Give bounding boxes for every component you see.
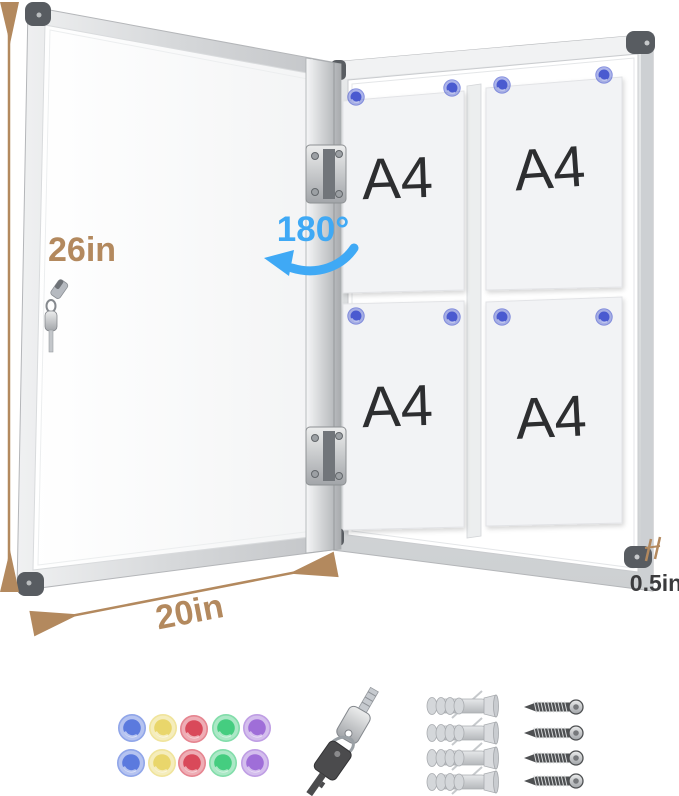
door-inner-panel — [33, 25, 318, 570]
board-divider — [467, 84, 481, 538]
magnet — [149, 714, 177, 742]
arrowhead-up-icon — [0, 2, 19, 44]
width-label: 20in — [153, 587, 227, 637]
mounting-screw — [524, 774, 583, 788]
a4-label: A4 — [361, 373, 434, 440]
mounting-screw — [524, 700, 583, 714]
board-magnet — [595, 308, 612, 325]
accessory-magnets — [117, 714, 271, 777]
board-magnet — [347, 88, 364, 105]
hinge — [306, 427, 346, 485]
board-magnet — [443, 308, 460, 325]
open-angle-label: 180° — [277, 210, 349, 249]
open-door — [17, 2, 332, 596]
included-keys — [299, 683, 385, 796]
mounting-screws — [524, 700, 583, 788]
dark-key — [299, 739, 354, 796]
wall-anchor — [427, 743, 499, 770]
arrowhead-down-icon — [0, 550, 19, 592]
cabinet-corner-cap-top-right — [626, 31, 655, 54]
arrowhead-left-icon — [29, 602, 81, 637]
arrowhead-right-icon — [287, 552, 339, 587]
a4-label: A4 — [361, 145, 434, 212]
board-magnet — [595, 66, 612, 83]
wall-anchor — [427, 718, 499, 745]
magnet — [117, 749, 145, 777]
magnet — [148, 749, 176, 777]
product-image-canvas: A4 A4 A4 A4 — [0, 0, 679, 796]
depth-label: 0.5in — [630, 570, 679, 596]
wall-anchor — [427, 767, 499, 794]
board-magnet — [347, 307, 364, 324]
wall-anchor — [427, 691, 499, 718]
mounting-screw — [524, 726, 583, 740]
wall-anchors — [427, 691, 499, 794]
hinge — [306, 145, 346, 203]
a4-label: A4 — [514, 383, 588, 452]
magnet — [243, 714, 271, 742]
magnet — [212, 714, 240, 742]
a4-label: A4 — [512, 134, 587, 204]
board-cabinet: A4 A4 A4 A4 — [331, 31, 655, 591]
mounting-screw — [524, 751, 583, 765]
magnet — [180, 715, 208, 743]
magnet — [241, 749, 269, 777]
height-label: 26in — [48, 231, 116, 269]
board-magnet — [443, 79, 460, 96]
magnet — [178, 749, 206, 777]
magnet — [118, 714, 146, 742]
board-magnet — [493, 76, 510, 93]
magnet — [209, 749, 237, 777]
product-illustration: A4 A4 A4 A4 — [0, 0, 679, 796]
board-magnet — [493, 308, 510, 325]
